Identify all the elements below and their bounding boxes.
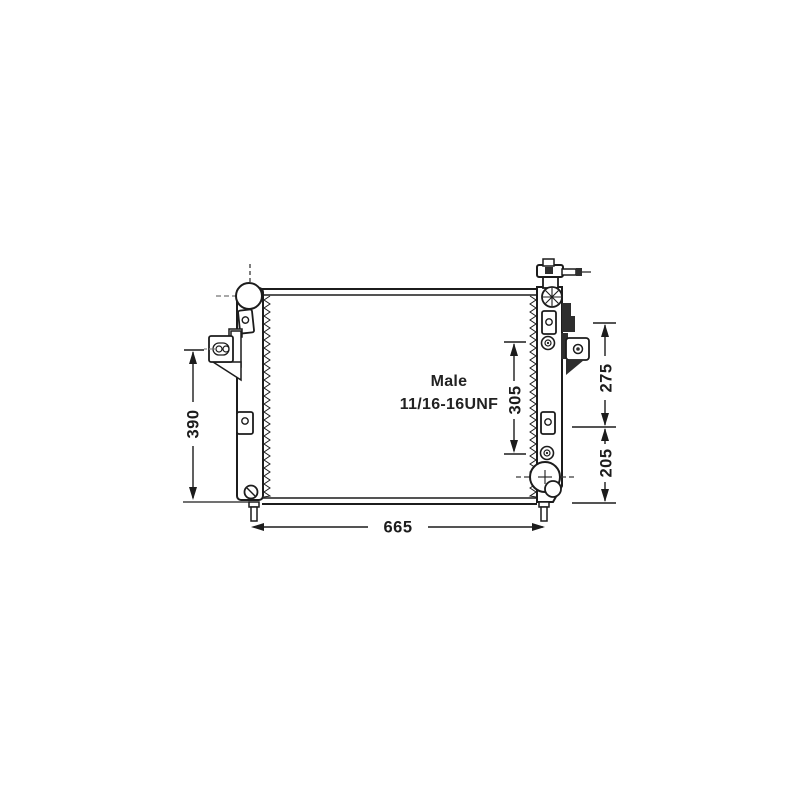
left-tank [209,264,263,521]
dimension-665: 665 [251,518,545,536]
left-middle-tab [237,412,253,434]
right-mounting-bracket [561,333,589,375]
oil-cooler-fitting-lower [541,447,554,460]
right-mounting-pin [539,502,549,521]
dimension-305: 305 [504,342,526,454]
inlet-port [236,283,262,309]
dim-205-label: 205 [597,448,615,477]
left-mounting-pin [249,502,259,521]
dim-275-label: 275 [597,363,615,392]
left-mounting-bracket [209,329,242,380]
right-middle-tab [541,412,555,434]
oil-cooler-fitting-upper [542,337,555,350]
radiator-diagram-page: 390 665 305 275 [0,0,800,800]
fitting-note-line2: 11/16-16UNF [400,396,498,413]
dim-305-label: 305 [506,385,524,414]
fitting-note-line1: Male [431,373,468,390]
right-side-channel [562,303,575,332]
dimension-205: 205 [572,428,616,503]
right-tank [516,259,591,521]
right-upper-tab [542,311,556,334]
left-drain-screw [245,486,258,499]
fitting-thread-note: Male 11/16-16UNF [400,373,498,413]
outlet-port [516,462,576,497]
dim-665-label: 665 [383,518,412,536]
filler-neck-cap [537,259,591,288]
core-fins-left [264,296,270,497]
dim-390-label: 390 [184,409,202,438]
radiator-technical-drawing: 390 665 305 275 [0,0,800,800]
pressure-cap-top-view [542,287,562,307]
